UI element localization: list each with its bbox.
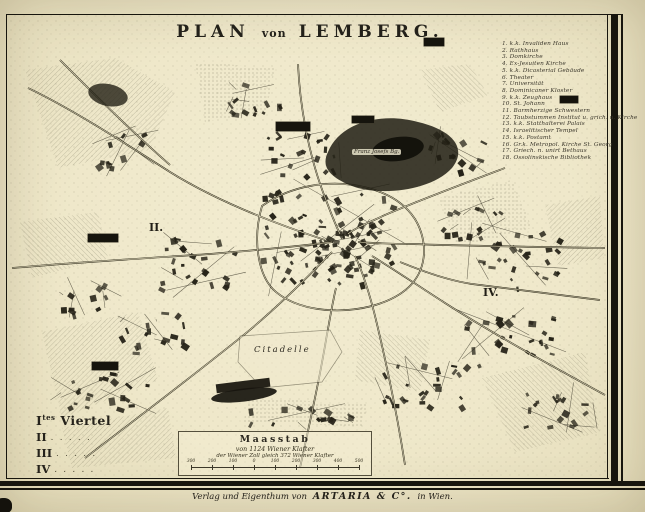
scale-tick-label: 400 <box>334 459 343 464</box>
legend-item: 8. Dominicaner Kloster <box>502 88 608 95</box>
scale-tick <box>212 465 213 470</box>
legend-list: 1. k.k. Invaliden Haus2. Rathhaus3. Domk… <box>502 41 608 162</box>
legend-item: 11. Barmherzige Schwestern <box>502 108 608 115</box>
publisher-prefix: Verlag und Eigenthum von <box>192 492 307 502</box>
scanned-map-page: Citadelle Franz Josefs Bg. II. IV. PLAN … <box>0 0 645 512</box>
citadelle-label: Citadelle <box>254 345 311 355</box>
scale-tick <box>338 465 339 470</box>
pelczynski-pond <box>210 385 277 406</box>
quarter-index: Ites Viertel II . . . . .III . . . . .IV… <box>36 413 111 476</box>
legend-item: 12. Taubstummen Institut u. grich. u. Ki… <box>502 115 608 122</box>
citadel-glacis <box>238 330 342 388</box>
title-word-lemberg: LEMBERG. <box>299 22 444 42</box>
legend-item: 5. k.k. Dicasterial Gebäude <box>502 68 608 75</box>
quarter-row-1: Ites Viertel <box>36 413 111 428</box>
quarter-row: IV . . . . . <box>36 462 111 476</box>
legend-item: 15. k.k. Postamt <box>502 135 608 142</box>
quarter-row: III . . . . . <box>36 446 111 460</box>
scale-tick-label: 300 <box>187 459 196 464</box>
publisher-name: ARTARIA & C°. <box>313 491 412 502</box>
quarter-row: II . . . . . <box>36 430 111 444</box>
quarter-leader-dots: . . . . . <box>54 465 95 474</box>
quarter-numeral: IV <box>36 462 50 476</box>
quarter-ordinal-suffix: tes <box>42 413 55 422</box>
legend-item: 14. Israelitischer Tempel <box>502 128 608 135</box>
scale-tick <box>275 465 276 470</box>
legend-item: 1. k.k. Invaliden Haus <box>502 41 608 48</box>
map-name-plate <box>88 234 118 242</box>
legend-item: 9. k.k. Zeughaus <box>502 95 608 102</box>
quarter-numeral: III <box>36 446 52 460</box>
citadel-fort <box>216 378 271 394</box>
map-title: PLAN von LEMBERG. <box>0 22 620 42</box>
publisher-imprint: Verlag und Eigenthum von ARTARIA & C°. i… <box>0 491 645 502</box>
scale-tick-label: 300 <box>313 459 322 464</box>
scale-title: Maasstab <box>179 434 371 445</box>
quarter-numeral: II <box>36 430 47 444</box>
quarter-leader-dots: . . . . . <box>51 433 92 442</box>
legend-item: 2. Rathhaus <box>502 48 608 55</box>
scale-tick-label: 500 <box>355 459 364 464</box>
legend-item: 7. Universität <box>502 81 608 88</box>
frame-right-band <box>611 14 618 484</box>
quarter-leader-dots: . . . . . <box>56 449 97 458</box>
legend-item: 6. Theater <box>502 75 608 82</box>
title-word-plan: PLAN <box>176 22 249 42</box>
terrain-features <box>86 80 458 405</box>
legend-item: 10. St. Johann <box>502 101 608 108</box>
scale-tick <box>359 465 360 470</box>
frame-bottom-outer-rule <box>0 488 645 490</box>
map-name-plate <box>92 362 118 370</box>
scale-tick-label: 200 <box>208 459 217 464</box>
scale-tick <box>254 465 255 470</box>
legend-item: 4. Ex-Jesuiten Kirche <box>502 61 608 68</box>
title-word-von: von <box>262 27 287 40</box>
scale-box: Maasstab von 1124 Wiener Klafter der Wie… <box>178 431 372 476</box>
scale-tick-label: 200 <box>292 459 301 464</box>
quarter-label: Viertel <box>60 413 111 428</box>
scale-tick <box>191 465 192 470</box>
map-name-plate <box>352 116 374 123</box>
frame-bottom-band <box>0 481 645 486</box>
legend-item: 13. k.k. Statthalterei Palais <box>502 121 608 128</box>
franz-josefs-berg-label: Franz Josefs Bg. <box>352 149 401 155</box>
scale-tick <box>296 465 297 470</box>
publisher-suffix: in Wien. <box>417 492 452 502</box>
scale-subtitle: von 1124 Wiener Klafter <box>179 446 371 453</box>
district-iv-numeral: IV. <box>483 286 499 299</box>
scale-tick <box>233 465 234 470</box>
frame-bottom-inner-rule <box>6 478 609 479</box>
legend-item: 3. Domkirche <box>502 54 608 61</box>
frame-left-rule <box>6 14 7 478</box>
legend-item: 17. Griech. n. unirt Bethaus <box>502 148 608 155</box>
scale-tick-label: 100 <box>271 459 280 464</box>
scale-bar: 3002001000100200300400500 <box>191 467 359 476</box>
scale-tick-label: 0 <box>253 459 256 464</box>
frame-top-rule <box>6 14 623 15</box>
district-ii-numeral: II. <box>149 221 163 234</box>
park-grove <box>86 80 130 110</box>
map-name-plate <box>276 122 310 131</box>
scale-tick <box>317 465 318 470</box>
legend-item: 18. Ossolinskische Bibliothek <box>502 155 608 162</box>
frame-right-outer-rule <box>621 14 623 486</box>
scale-tick-label: 100 <box>229 459 238 464</box>
legend-item: 16. Gr.k. Metropol. Kirche St. Georg <box>502 142 608 149</box>
